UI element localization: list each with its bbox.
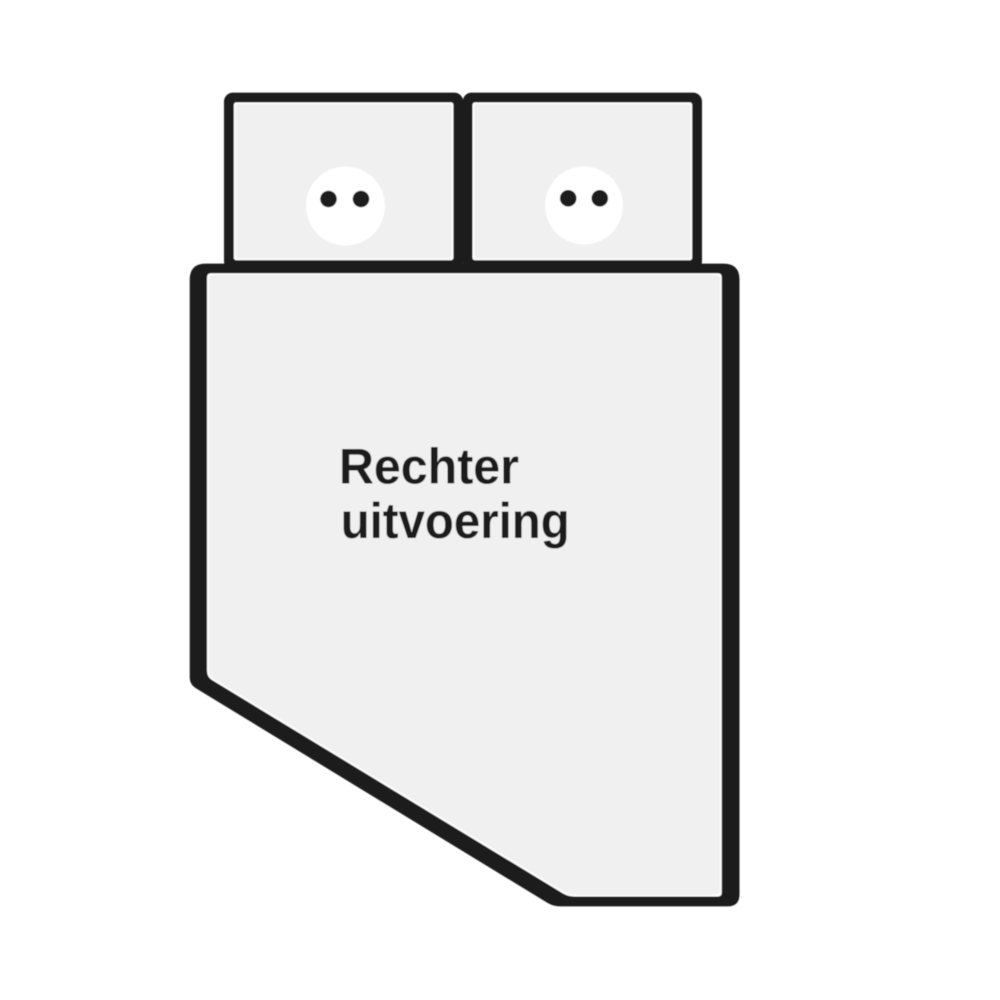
svg-text:uitvoering: uitvoering <box>341 493 570 549</box>
svg-text:Rechter: Rechter <box>339 438 519 494</box>
